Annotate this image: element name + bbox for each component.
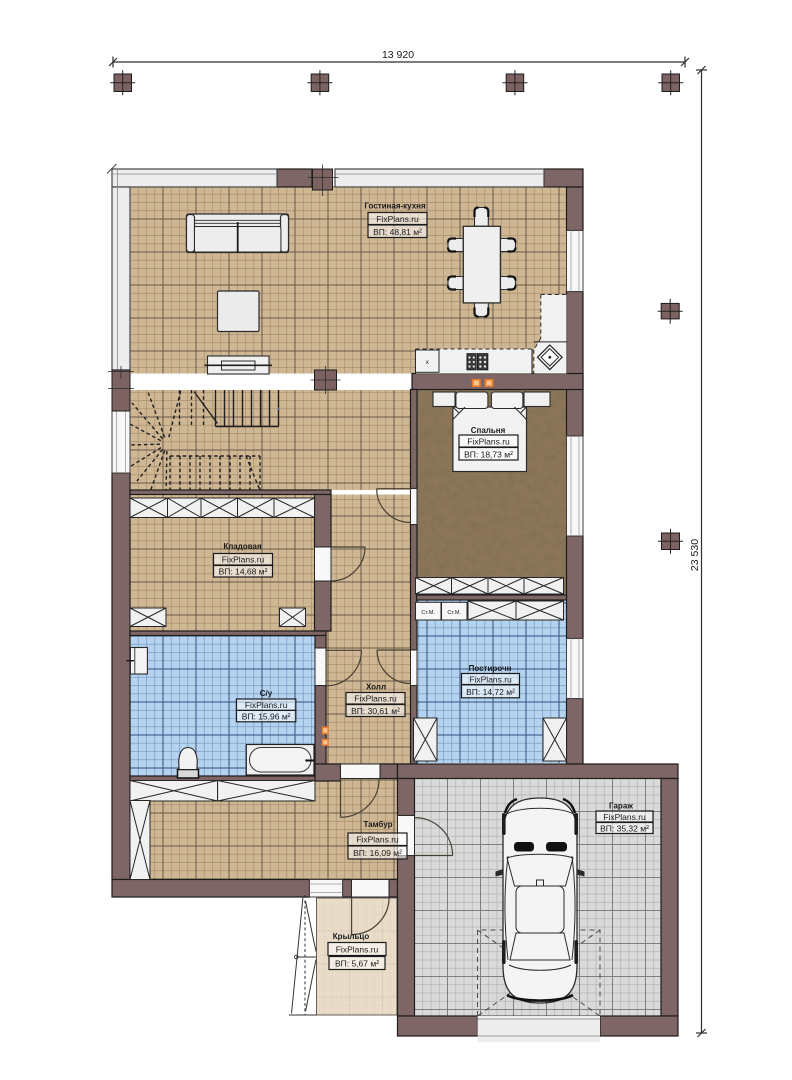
svg-text:ВП: 14,72 м²: ВП: 14,72 м² bbox=[466, 687, 515, 697]
svg-text:ВП: 30,61 м²: ВП: 30,61 м² bbox=[351, 706, 400, 716]
svg-text:Постирочн: Постирочн bbox=[469, 664, 512, 673]
svg-text:ВП: 16,09 м²: ВП: 16,09 м² bbox=[353, 848, 402, 858]
svg-text:Холл: Холл bbox=[366, 683, 386, 692]
svg-text:FixPlans.ru: FixPlans.ru bbox=[356, 835, 399, 845]
svg-text:С/у: С/у bbox=[260, 689, 273, 698]
svg-text:FixPlans.ru: FixPlans.ru bbox=[467, 436, 510, 446]
svg-text:Кладовая: Кладовая bbox=[223, 542, 262, 551]
svg-text:Гараж: Гараж bbox=[609, 802, 633, 811]
svg-text:Крыльцо: Крыльцо bbox=[333, 932, 370, 941]
svg-text:FixPlans.ru: FixPlans.ru bbox=[354, 694, 397, 704]
svg-text:Ст.М.: Ст.М. bbox=[421, 610, 435, 616]
svg-text:23 530: 23 530 bbox=[689, 539, 701, 571]
svg-text:ВП: 15,96 м²: ВП: 15,96 м² bbox=[242, 712, 291, 722]
svg-text:FixPlans.ru: FixPlans.ru bbox=[245, 700, 288, 710]
svg-text:FixPlans.ru: FixPlans.ru bbox=[376, 214, 419, 224]
svg-text:Тамбур: Тамбур bbox=[363, 820, 392, 829]
svg-text:FixPlans.ru: FixPlans.ru bbox=[336, 945, 379, 955]
svg-text:Гостиная-кухня: Гостиная-кухня bbox=[364, 202, 426, 211]
svg-text:13 920: 13 920 bbox=[382, 49, 414, 61]
svg-text:FixPlans.ru: FixPlans.ru bbox=[222, 555, 265, 565]
svg-text:FixPlans.ru: FixPlans.ru bbox=[469, 674, 512, 684]
svg-text:ВП: 48,81 м²: ВП: 48,81 м² bbox=[373, 227, 422, 237]
svg-text:FixPlans.ru: FixPlans.ru bbox=[603, 812, 646, 822]
svg-text:ВП: 5,67 м²: ВП: 5,67 м² bbox=[335, 959, 379, 969]
svg-text:ВП: 18,73 м²: ВП: 18,73 м² bbox=[464, 449, 513, 459]
svg-text:ВП: 14,68 м²: ВП: 14,68 м² bbox=[219, 567, 268, 577]
svg-text:Ст.М.: Ст.М. bbox=[447, 610, 461, 616]
svg-text:Спальня: Спальня bbox=[471, 426, 506, 435]
svg-text:ВП: 35,32 м²: ВП: 35,32 м² bbox=[600, 823, 649, 833]
